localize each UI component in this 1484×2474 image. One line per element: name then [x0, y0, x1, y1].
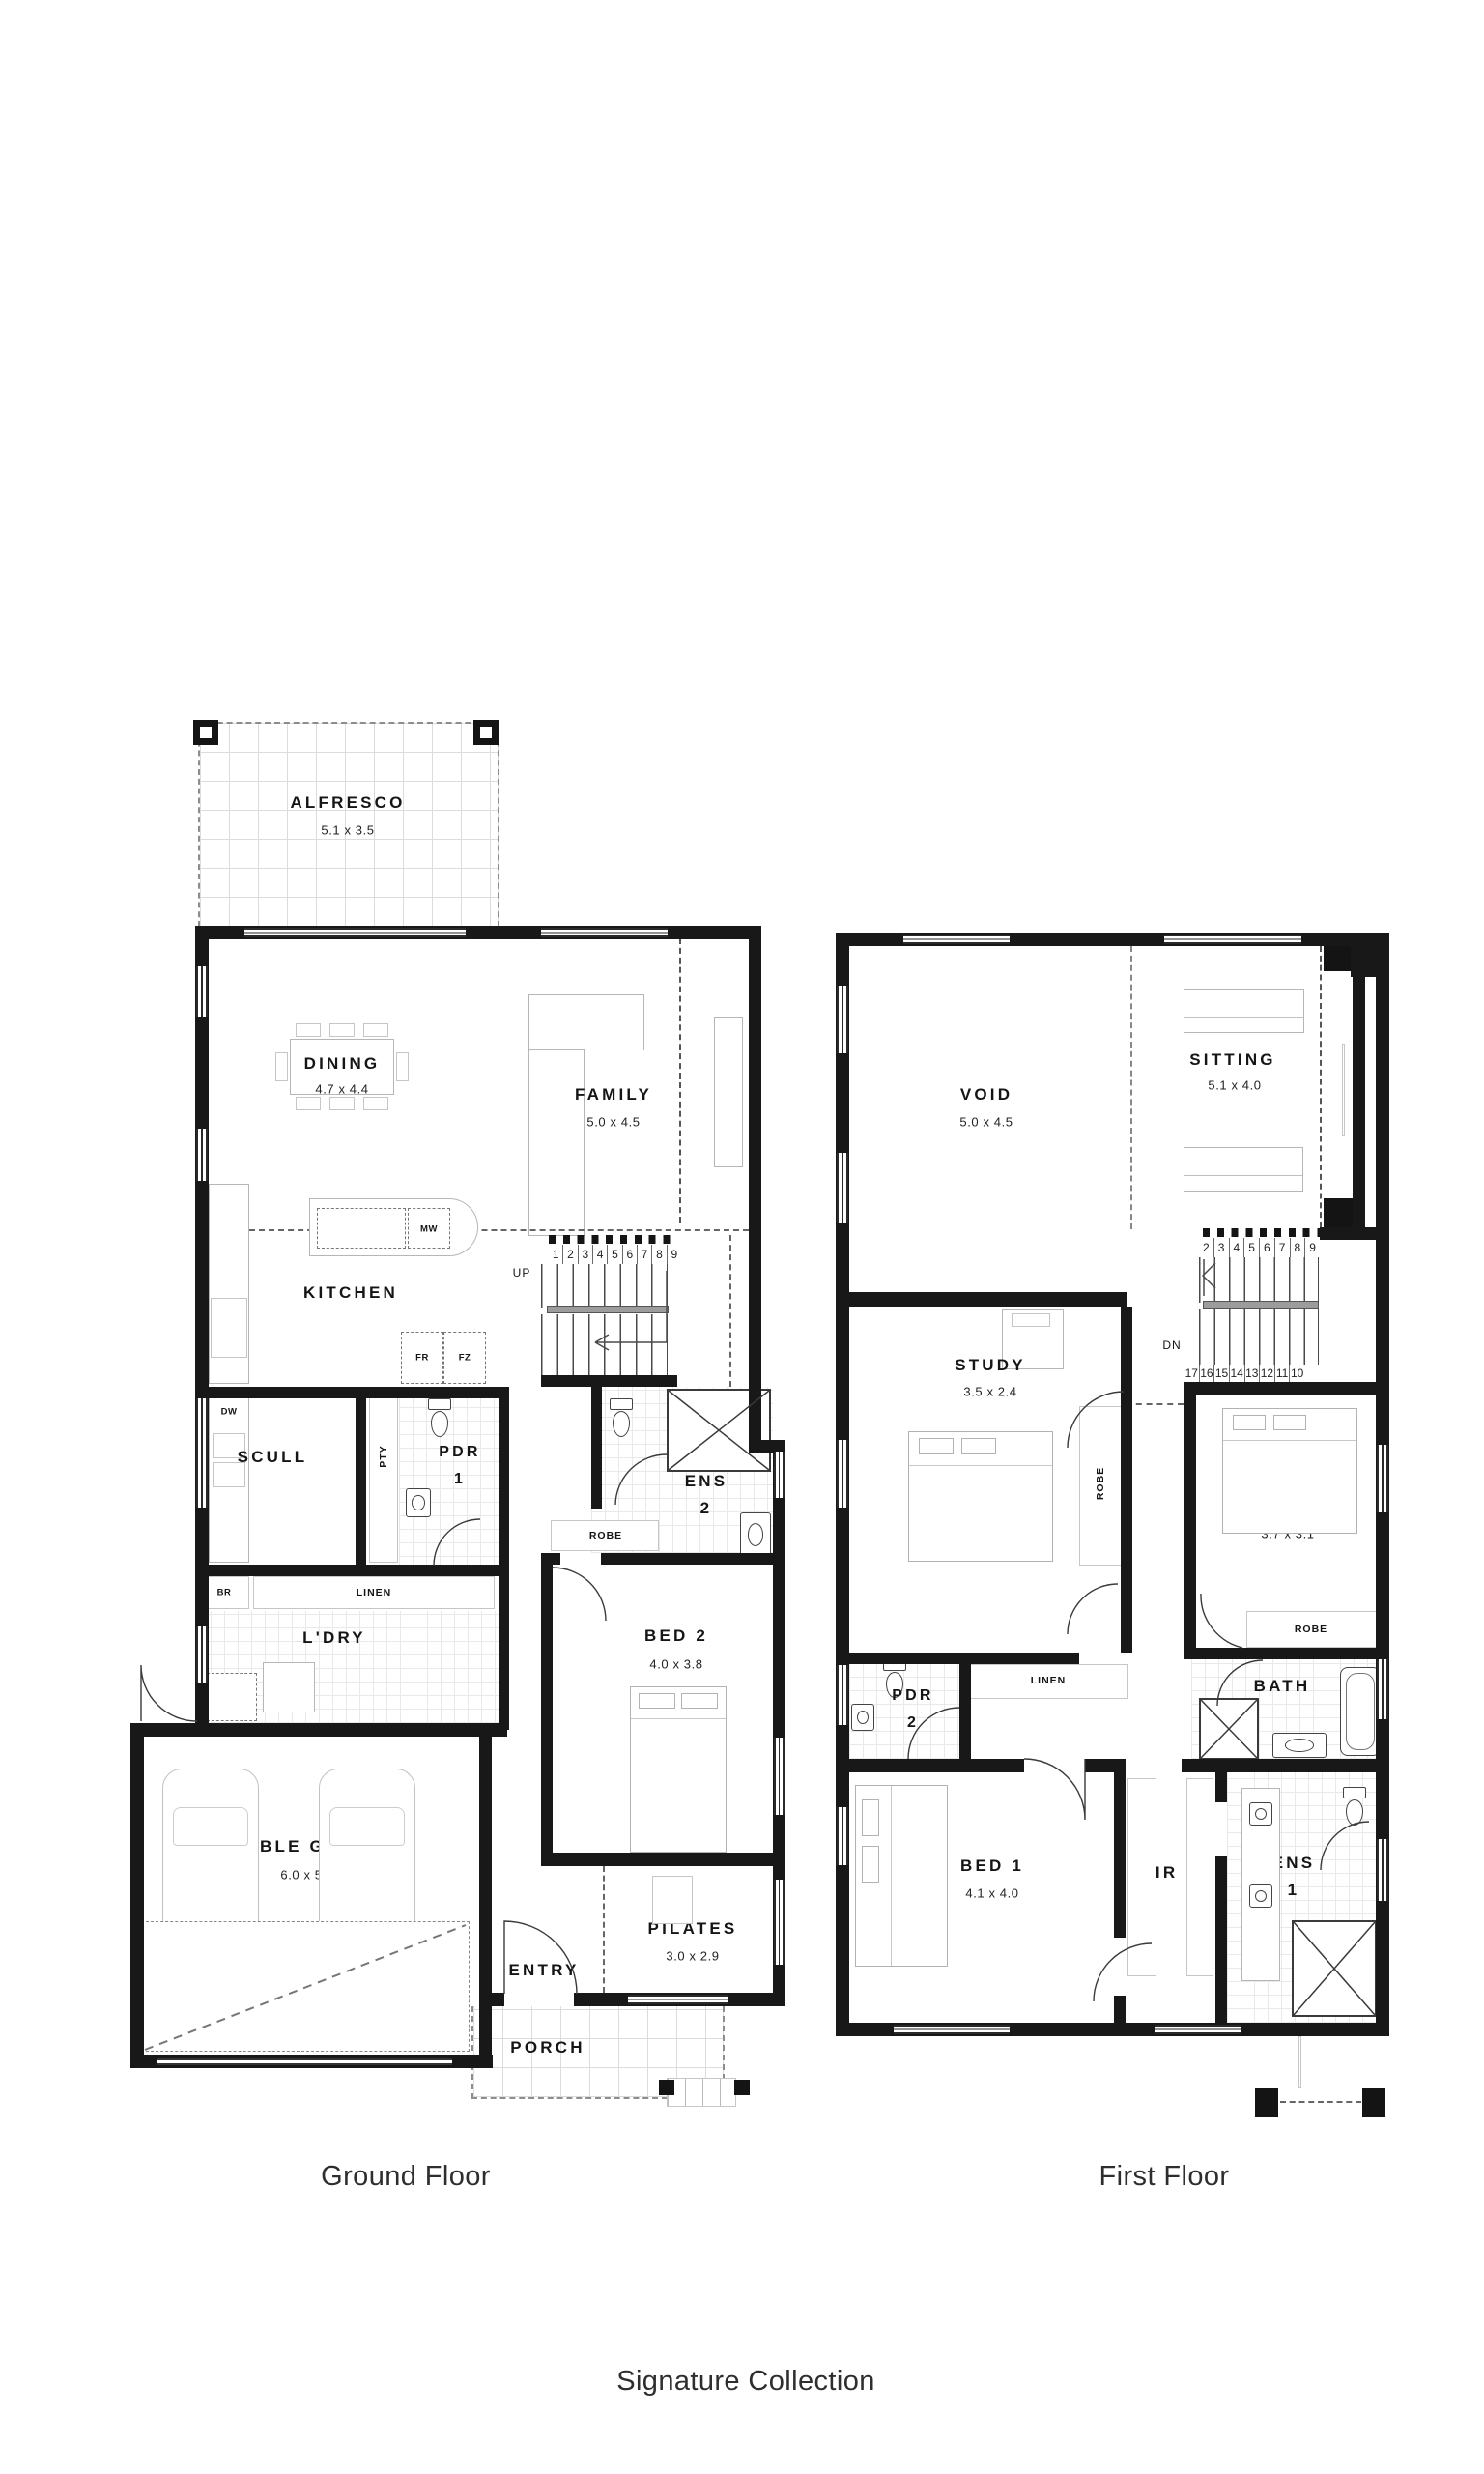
room-label-ens2-number: 2 [700, 1499, 713, 1518]
sitting-sofa [1184, 989, 1304, 1033]
room-label-ens1-number: 1 [1288, 1881, 1300, 1900]
wall [541, 1375, 677, 1387]
stair-number: 3 [1214, 1238, 1230, 1257]
dining-chair [296, 1023, 321, 1037]
family-sofa [528, 994, 644, 1050]
robe-label: ROBE [1295, 1624, 1327, 1635]
island-inner-dashed [317, 1208, 406, 1249]
step-post [1362, 2088, 1385, 2117]
stair-number: 4 [1230, 1238, 1245, 1257]
pillow [1233, 1415, 1266, 1430]
toilet-bowl [613, 1411, 630, 1437]
stair-number: 17 [1184, 1365, 1200, 1382]
dining-chair [275, 1052, 288, 1081]
toilet-cistern [428, 1398, 451, 1410]
stair-treads-lower [541, 1314, 668, 1375]
toilet-bowl [1346, 1799, 1363, 1826]
pilates-equipment [652, 1876, 693, 1924]
window [541, 928, 668, 937]
room-label-family: FAMILY [575, 1085, 652, 1105]
stair-treads-lower [1199, 1309, 1319, 1365]
broom-label: BR [217, 1588, 232, 1598]
stair-number: 5 [1244, 1238, 1260, 1257]
door-arc [553, 1568, 606, 1621]
bathtub [1340, 1667, 1381, 1756]
room-dim-family: 5.0 x 4.5 [586, 1115, 640, 1130]
room-label-kitchen: KITCHEN [303, 1283, 398, 1303]
window [1377, 1445, 1388, 1512]
door-arc [1024, 1759, 1085, 1820]
stair-number: 9 [668, 1245, 681, 1264]
floorplan-page: ALFRESCO 5.1 x 3.5 PORCH MW [0, 0, 1484, 2474]
wall [1215, 1855, 1227, 2023]
room-label-dining: DINING [304, 1054, 381, 1074]
door-arc [1068, 1584, 1118, 1634]
stair-number: 7 [1275, 1238, 1291, 1257]
stairs-dn-label: DN [1162, 1338, 1181, 1352]
laundry-tub [263, 1662, 315, 1712]
pillow [1273, 1415, 1306, 1430]
window [903, 935, 1010, 944]
stair-number: 7 [638, 1245, 652, 1264]
room-dim-sitting: 5.1 x 4.0 [1208, 1079, 1261, 1093]
wall [1085, 1759, 1126, 1772]
room-dim-dining: 4.7 x 4.4 [315, 1082, 368, 1097]
basin-icon [851, 1704, 874, 1731]
stair-rail [547, 1306, 669, 1313]
wall [1184, 1395, 1196, 1659]
pantry-cupboard [369, 1391, 398, 1563]
window [837, 986, 848, 1053]
toilet-icon [1342, 1787, 1367, 1827]
window [196, 1626, 208, 1683]
first-floor-caption: First Floor [1029, 2161, 1299, 2193]
pillow [919, 1438, 954, 1454]
stair-numbers-bottom: 1716151413121110 [1184, 1365, 1304, 1382]
linen-label: LINEN [357, 1587, 392, 1598]
wall [836, 1292, 1127, 1307]
wall [541, 1553, 553, 1864]
stair-number: 16 [1200, 1365, 1215, 1382]
washer-box [207, 1673, 257, 1721]
wir-shelf [1186, 1778, 1213, 1976]
room-label-void: VOID [960, 1085, 1013, 1105]
dining-chair [396, 1052, 409, 1081]
entry-pilates-dashed [603, 1866, 605, 1993]
pillow [639, 1693, 675, 1709]
stair-number: 9 [1305, 1238, 1320, 1257]
wall [195, 926, 209, 1730]
room-label-bath: BATH [1254, 1677, 1311, 1696]
desk-monitor [1012, 1313, 1050, 1327]
wall [601, 1553, 785, 1565]
stair-numbers-top: 23456789 [1199, 1238, 1320, 1257]
linen-label: LINEN [1031, 1675, 1067, 1686]
stair-number: 8 [652, 1245, 667, 1264]
basin-icon [1249, 1884, 1272, 1908]
vanity-basin [740, 1512, 771, 1557]
wall [1184, 1648, 1389, 1659]
shower-box [1292, 1920, 1377, 2017]
ground-floor-plan: ALFRESCO 5.1 x 3.5 PORCH MW [126, 720, 802, 2116]
room-label-ens2: ENS [685, 1472, 728, 1491]
door-arc [1201, 1594, 1242, 1648]
stair-treads-upper [1199, 1257, 1319, 1303]
collection-caption: Signature Collection [553, 2366, 939, 2398]
stair-number: 2 [1199, 1238, 1214, 1257]
wall [749, 926, 761, 1453]
cooktop [211, 1298, 247, 1358]
room-label-ldry: L'DRY [302, 1628, 366, 1648]
room-dim-bed1: 4.1 x 4.0 [965, 1886, 1018, 1901]
door-arc [504, 1921, 577, 1994]
sitting-balcony-dashed [1320, 946, 1322, 1227]
pillow [961, 1438, 996, 1454]
stair-number: 5 [608, 1245, 622, 1264]
dining-chair [329, 1097, 355, 1110]
window [1377, 1839, 1388, 1901]
stair-number: 15 [1214, 1365, 1230, 1382]
dining-chair [363, 1023, 388, 1037]
toilet-cistern [1343, 1787, 1366, 1798]
stair-number: 10 [1290, 1365, 1304, 1382]
window [837, 1153, 848, 1223]
toilet-icon [609, 1398, 634, 1439]
balcony-post [1324, 942, 1353, 971]
window [244, 928, 466, 937]
stair-number: 8 [1291, 1238, 1306, 1257]
stair-void-dashed [729, 1235, 731, 1387]
toilet-icon [427, 1398, 452, 1439]
room-label-pdr1-number: 1 [454, 1471, 466, 1488]
dining-chair [363, 1097, 388, 1110]
window [837, 1807, 848, 1865]
freezer-label: FZ [459, 1353, 471, 1364]
pillow [862, 1799, 879, 1836]
toilet-bowl [431, 1411, 448, 1437]
wall [479, 1723, 492, 2068]
room-label-porch: PORCH [510, 2038, 585, 2057]
room-label-pdr2: PDR [892, 1687, 933, 1705]
wall [1215, 1772, 1227, 1802]
microwave-label: MW [420, 1224, 438, 1235]
wall [836, 1759, 1024, 1772]
stair-number: 6 [1260, 1238, 1275, 1257]
window [628, 1995, 728, 2004]
porch-post [734, 2080, 750, 2095]
window [837, 1440, 848, 1508]
room-dim-alfresco: 5.1 x 3.5 [321, 823, 374, 838]
wall [499, 1387, 509, 1730]
alfresco-post [193, 720, 218, 745]
bed3-bed [908, 1431, 1053, 1562]
room-dim-study: 3.5 x 2.4 [963, 1385, 1016, 1399]
stair-number: 12 [1260, 1365, 1275, 1382]
room-label-bed1: BED 1 [960, 1856, 1024, 1876]
room-label-study: STUDY [955, 1356, 1026, 1375]
bed-line [891, 1786, 892, 1966]
family-sofa [528, 1049, 585, 1236]
bed1-bed [855, 1785, 948, 1967]
window [1164, 935, 1301, 944]
wall [195, 1387, 509, 1398]
stair-number: 14 [1230, 1365, 1245, 1382]
porch-steps [667, 2078, 736, 2107]
toilet-cistern [610, 1398, 633, 1410]
window [196, 1129, 208, 1181]
fridge-label: FR [415, 1353, 429, 1364]
first-floor-plan: VOID 5.0 x 4.5 SITTING 5.1 x 4.0 STUDY 3… [836, 933, 1401, 2145]
tv-cabinet [714, 1017, 743, 1167]
bed-line [631, 1718, 726, 1719]
robe-label: ROBE [589, 1530, 622, 1541]
wall [356, 1387, 366, 1576]
step-connector [1298, 2036, 1301, 2088]
basin-icon [1249, 1802, 1272, 1826]
pillow [862, 1846, 879, 1883]
wall [1184, 1382, 1389, 1395]
hall-dashed [1126, 1403, 1184, 1405]
stair-treads-upper [541, 1264, 668, 1308]
stair-ticks [1203, 1228, 1320, 1237]
window [774, 1452, 785, 1498]
driveway-dashed [141, 1921, 470, 2052]
wall [959, 1653, 971, 1761]
window [196, 966, 208, 1017]
stair-number: 2 [563, 1245, 578, 1264]
window [894, 2025, 1010, 2034]
stair-number: 13 [1245, 1365, 1261, 1382]
room-label-scull: SCULL [238, 1448, 308, 1467]
pillow [681, 1693, 718, 1709]
sitting-sofa [1184, 1147, 1303, 1192]
window [774, 1738, 785, 1815]
shower-box [1199, 1698, 1259, 1760]
wall [591, 1387, 602, 1509]
wall [130, 1723, 144, 2068]
stair-numbers: 123456789 [549, 1245, 681, 1264]
garage-door [157, 2058, 452, 2065]
bed-line [909, 1465, 1052, 1466]
void-sitting-divider [1130, 946, 1132, 1229]
wall [130, 1723, 507, 1737]
step-post [1255, 2088, 1278, 2117]
room-label-sitting: SITTING [1189, 1050, 1275, 1070]
stair-number: 3 [579, 1245, 593, 1264]
wall [1182, 1759, 1389, 1772]
room-label-alfresco: ALFRESCO [290, 793, 405, 813]
dishwasher-label: DW [221, 1407, 238, 1418]
room-label-bed2: BED 2 [644, 1626, 708, 1646]
room-label-pdr2-number: 2 [907, 1714, 919, 1732]
wall [1320, 1227, 1389, 1240]
room-dim-pilates: 3.0 x 2.9 [666, 1949, 719, 1964]
bed-line [1223, 1440, 1356, 1441]
ground-floor-caption: Ground Floor [271, 2161, 541, 2193]
alfresco-post [473, 720, 499, 745]
bed2-bed [630, 1686, 727, 1853]
stair-rail [1203, 1301, 1319, 1309]
wir-shelf [1127, 1778, 1156, 1976]
window [774, 1880, 785, 1965]
room-dim-bed2: 4.0 x 3.8 [649, 1657, 702, 1672]
window [837, 1665, 848, 1725]
stair-number: 11 [1275, 1365, 1291, 1382]
step-dashed [1280, 2101, 1361, 2103]
dining-chair [329, 1023, 355, 1037]
door-arc [141, 1665, 197, 1721]
dining-chair [296, 1097, 321, 1110]
stair-ticks [549, 1235, 677, 1244]
wall [195, 1565, 509, 1576]
balcony-post [1324, 1198, 1353, 1227]
robe-label: ROBE [1095, 1467, 1106, 1500]
wall [1121, 1307, 1132, 1653]
wall [1114, 1996, 1126, 2023]
room-label-pdr1: PDR [439, 1444, 480, 1461]
window [1155, 2025, 1241, 2034]
tv-line [1342, 1044, 1345, 1136]
stair-number: 6 [623, 1245, 638, 1264]
wall [1114, 1772, 1126, 1938]
room-label-entry: ENTRY [509, 1961, 580, 1980]
vanity-basin [1272, 1733, 1327, 1758]
bed4-bed [1222, 1408, 1357, 1534]
porch-post [659, 2080, 674, 2095]
basin-icon [406, 1488, 431, 1517]
wall [1353, 940, 1365, 1230]
entry-door-opening [504, 1993, 574, 2006]
stair-number: 4 [593, 1245, 608, 1264]
room-dim-void: 5.0 x 4.5 [959, 1115, 1013, 1130]
pantry-label: PTY [378, 1445, 389, 1467]
window [1377, 1659, 1388, 1719]
tv-wall-dashed [679, 938, 681, 1223]
stair-number: 1 [549, 1245, 563, 1264]
window [196, 1396, 208, 1508]
stairs-up-label: UP [513, 1266, 531, 1280]
wall [541, 1853, 785, 1866]
